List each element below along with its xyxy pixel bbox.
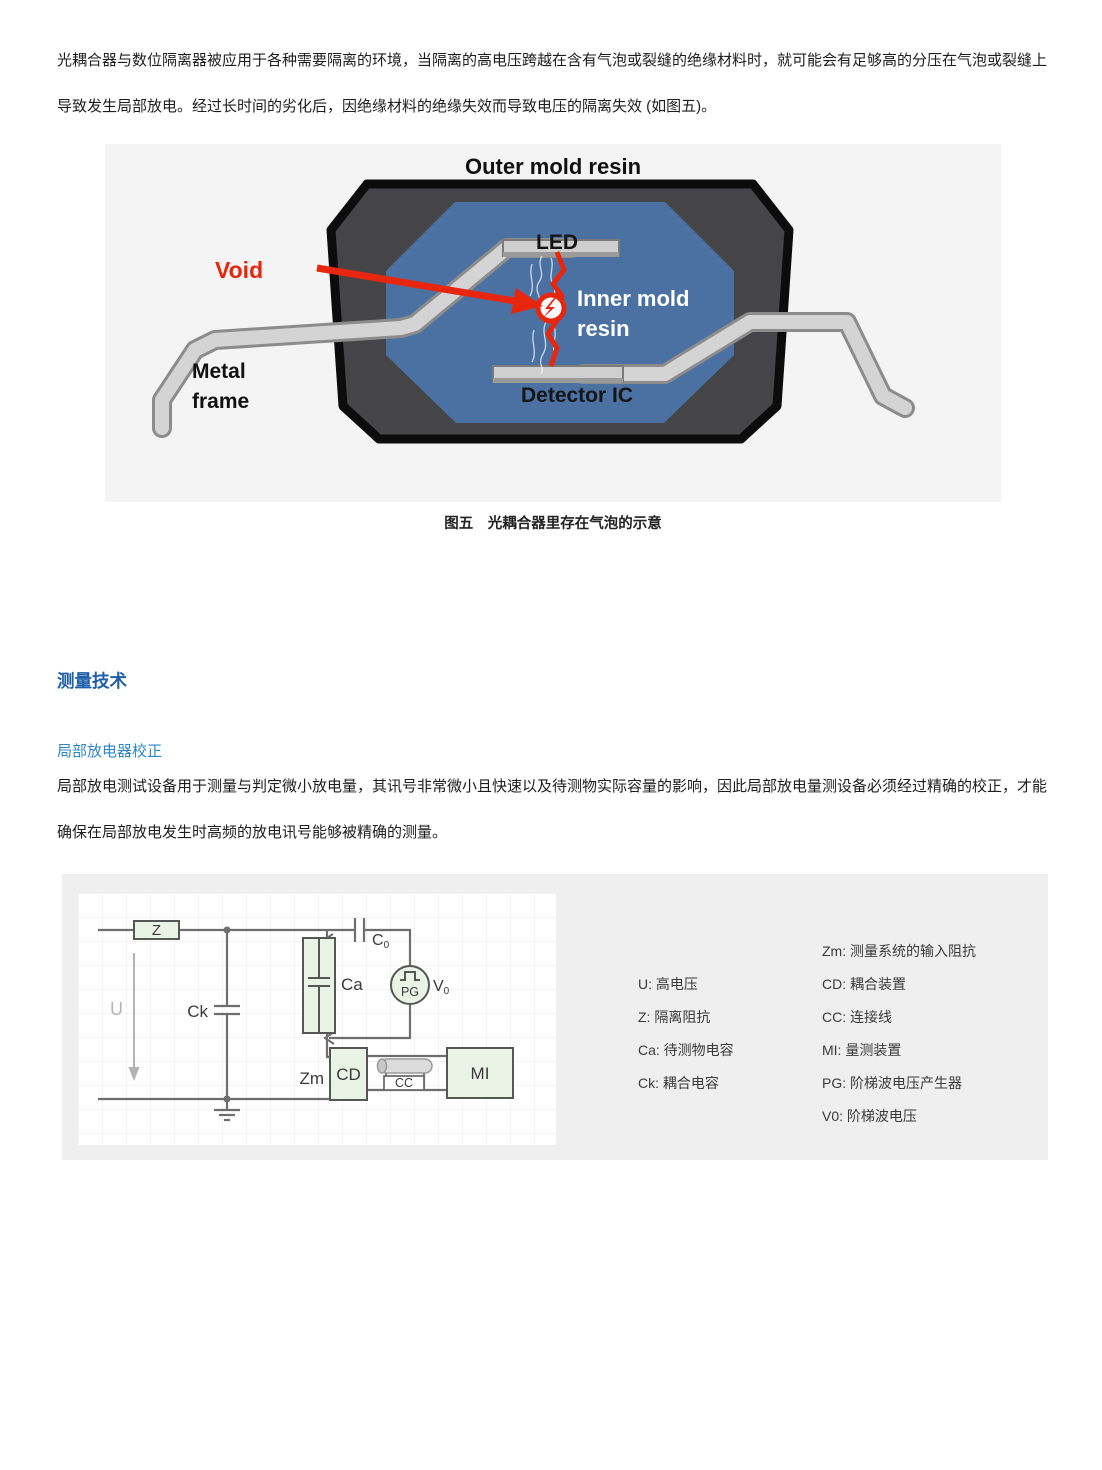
led-label: LED [536, 231, 578, 254]
void-label: Void [215, 257, 263, 283]
circuit-diagram-panel: Z U Ck Ca C0 PG V0 Zm CD CC MI [78, 893, 556, 1145]
legend-ca: Ca: 待测物电容 [638, 1034, 734, 1067]
outer-mold-resin-label: Outer mold resin [465, 154, 641, 179]
metal-frame-label-line2: frame [192, 390, 249, 413]
pg-label: PG [401, 985, 419, 999]
intro-paragraph-line2: 导致发生局部放电。经过长时间的劣化后，因绝缘材料的绝缘失效而导致电压的隔离失效 … [57, 84, 1049, 130]
detector-ic-label: Detector IC [521, 384, 633, 407]
optocoupler-diagram: Outer mold resin [105, 144, 1001, 502]
u-label: U [110, 999, 123, 1019]
figure5-caption: 图五 光耦合器里存在气泡的示意 [105, 512, 1001, 533]
ck-label: Ck [187, 1002, 208, 1021]
separator-line [57, 700, 1043, 712]
legend-cd: CD: 耦合装置 [822, 968, 976, 1001]
intro-paragraph-line1: 光耦合器与数位隔离器被应用于各种需要隔离的环境，当隔离的高电压跨越在含有气泡或裂… [57, 38, 1049, 84]
legend-ck: Ck: 耦合电容 [638, 1067, 734, 1100]
z-label: Z [152, 922, 161, 939]
zm-label: Zm [299, 1069, 324, 1088]
void-bubble [538, 295, 564, 321]
ca-label: Ca [341, 975, 363, 994]
junction-dot-bottom [224, 1096, 231, 1103]
figure5-optocoupler: Outer mold resin [105, 144, 1001, 502]
cc-label: CC [395, 1076, 413, 1090]
section-title: 测量技术 [57, 668, 127, 693]
legend-u: U: 高电压 [638, 968, 734, 1001]
legend-cc: CC: 连接线 [822, 1001, 976, 1034]
document-page: { "document": { "paragraph1": { "line1":… [0, 0, 1102, 1470]
junction-dot-top [224, 927, 231, 934]
calibration-panel: Z U Ck Ca C0 PG V0 Zm CD CC MI U: 高电压 Z:… [62, 874, 1048, 1160]
inner-mold-label-line1: Inner mold [577, 286, 689, 311]
legend-zm: Zm: 测量系统的输入阻抗 [822, 935, 976, 968]
legend-column-right: Zm: 测量系统的输入阻抗 CD: 耦合装置 CC: 连接线 MI: 量测装置 … [822, 935, 976, 1133]
legend-v0: V0: 阶梯波电压 [822, 1100, 976, 1133]
legend-z: Z: 隔离阻抗 [638, 1001, 734, 1034]
body-paragraph: 局部放电测试设备用于测量与判定微小放电量，其讯号非常微小且快速以及待测物实际容量… [57, 764, 1049, 856]
cd-label: CD [336, 1065, 361, 1084]
legend-column-left: U: 高电压 Z: 隔离阻抗 Ca: 待测物电容 Ck: 耦合电容 [638, 968, 734, 1100]
legend-pg: PG: 阶梯波电压产生器 [822, 1067, 976, 1100]
u-voltage-arrow [129, 953, 140, 1081]
body-paragraph-line2: 确保在局部放电发生时高频的放电讯号能够被精确的测量。 [57, 810, 1049, 856]
inner-mold-label-line2: resin [577, 316, 630, 341]
subsection-title: 局部放电器校正 [57, 740, 162, 761]
c0-label: C0 [372, 932, 390, 951]
v0-label: V0 [433, 978, 450, 997]
metal-frame-label-line1: Metal [192, 360, 246, 383]
legend-mi: MI: 量测装置 [822, 1034, 976, 1067]
detector-die-bar [493, 366, 623, 383]
body-paragraph-line1: 局部放电测试设备用于测量与判定微小放电量，其讯号非常微小且快速以及待测物实际容量… [57, 764, 1049, 810]
section-separator [57, 699, 1043, 711]
intro-paragraph: 光耦合器与数位隔离器被应用于各种需要隔离的环境，当隔离的高电压跨越在含有气泡或裂… [57, 38, 1049, 130]
mi-label: MI [471, 1064, 490, 1083]
pd-calibration-circuit: Z U Ck Ca C0 PG V0 Zm CD CC MI [78, 893, 556, 1145]
